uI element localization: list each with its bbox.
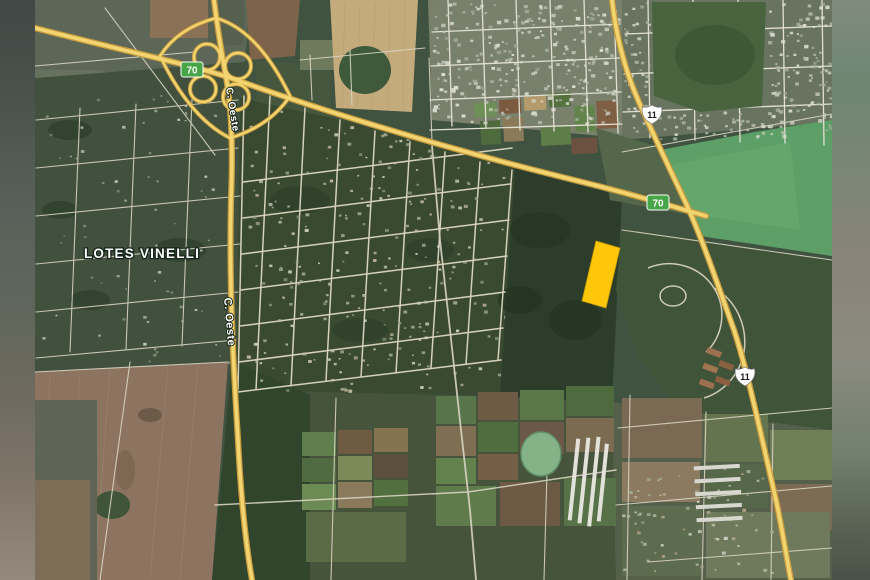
- pond: [521, 432, 561, 476]
- route-11-shield-bottom-label: 11: [740, 372, 750, 382]
- route-70-shield-top: 70: [181, 62, 203, 77]
- area-label: LOTES VINELLI: [84, 246, 200, 261]
- field-grove: [339, 46, 391, 94]
- satellite-map: 70 70 11 11 LOTES VINELLI C. Oeste C. Oe…: [0, 0, 870, 580]
- route-11-shield-top-label: 11: [647, 110, 657, 120]
- town-park: [652, 2, 766, 112]
- route-70-shield-mid: 70: [647, 195, 669, 210]
- right-letterbox-bar: [832, 0, 870, 580]
- satellite-map-image: 70 70 11 11 LOTES VINELLI C. Oeste C. Oe…: [0, 0, 870, 580]
- route-70-shield-top-label: 70: [186, 66, 198, 77]
- left-letterbox-bar: [0, 0, 35, 580]
- route-70-shield-mid-label: 70: [652, 199, 664, 210]
